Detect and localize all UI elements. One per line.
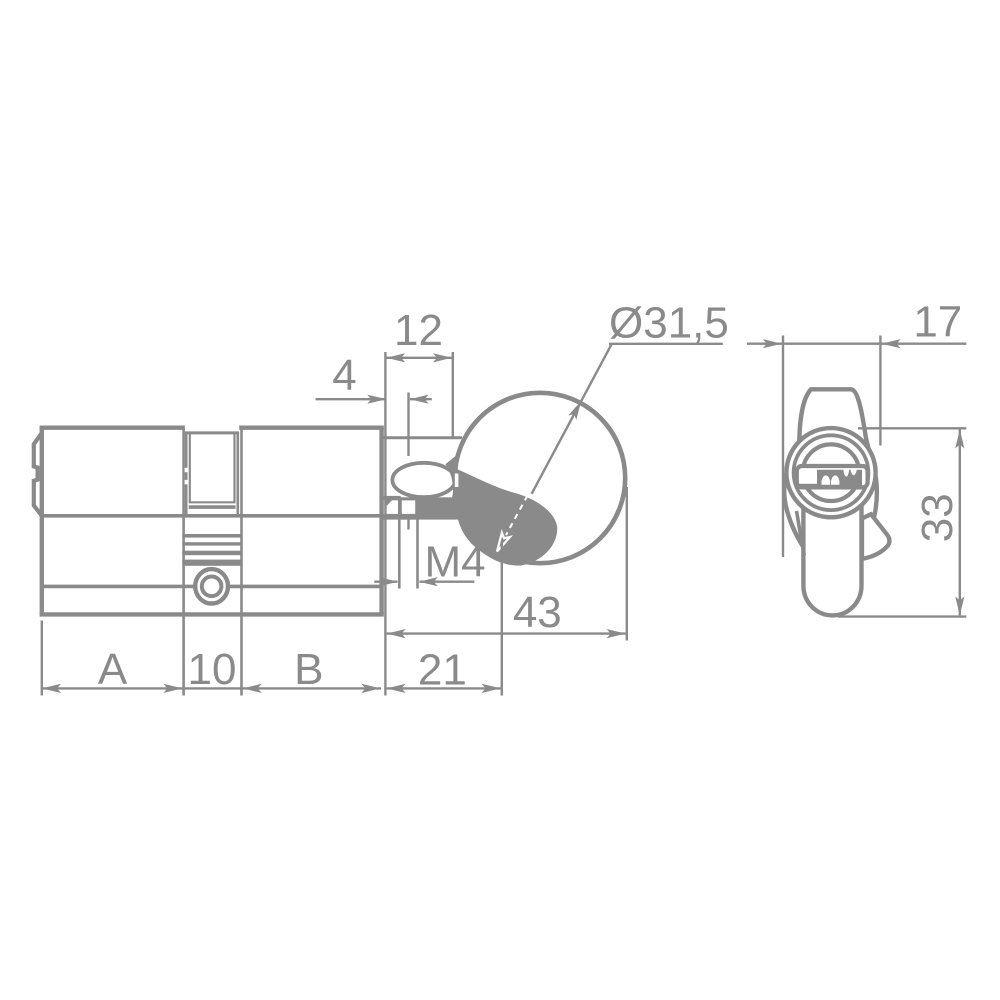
svg-text:M4: M4 bbox=[425, 538, 486, 587]
svg-text:12: 12 bbox=[394, 306, 443, 355]
svg-text:10: 10 bbox=[188, 645, 237, 694]
svg-text:B: B bbox=[294, 645, 323, 694]
svg-text:4: 4 bbox=[332, 351, 356, 400]
svg-text:33: 33 bbox=[913, 493, 962, 542]
svg-text:Ø31,5: Ø31,5 bbox=[609, 299, 729, 348]
svg-text:21: 21 bbox=[418, 646, 467, 695]
svg-text:A: A bbox=[98, 645, 128, 694]
svg-text:17: 17 bbox=[913, 298, 962, 347]
svg-text:43: 43 bbox=[513, 588, 562, 637]
